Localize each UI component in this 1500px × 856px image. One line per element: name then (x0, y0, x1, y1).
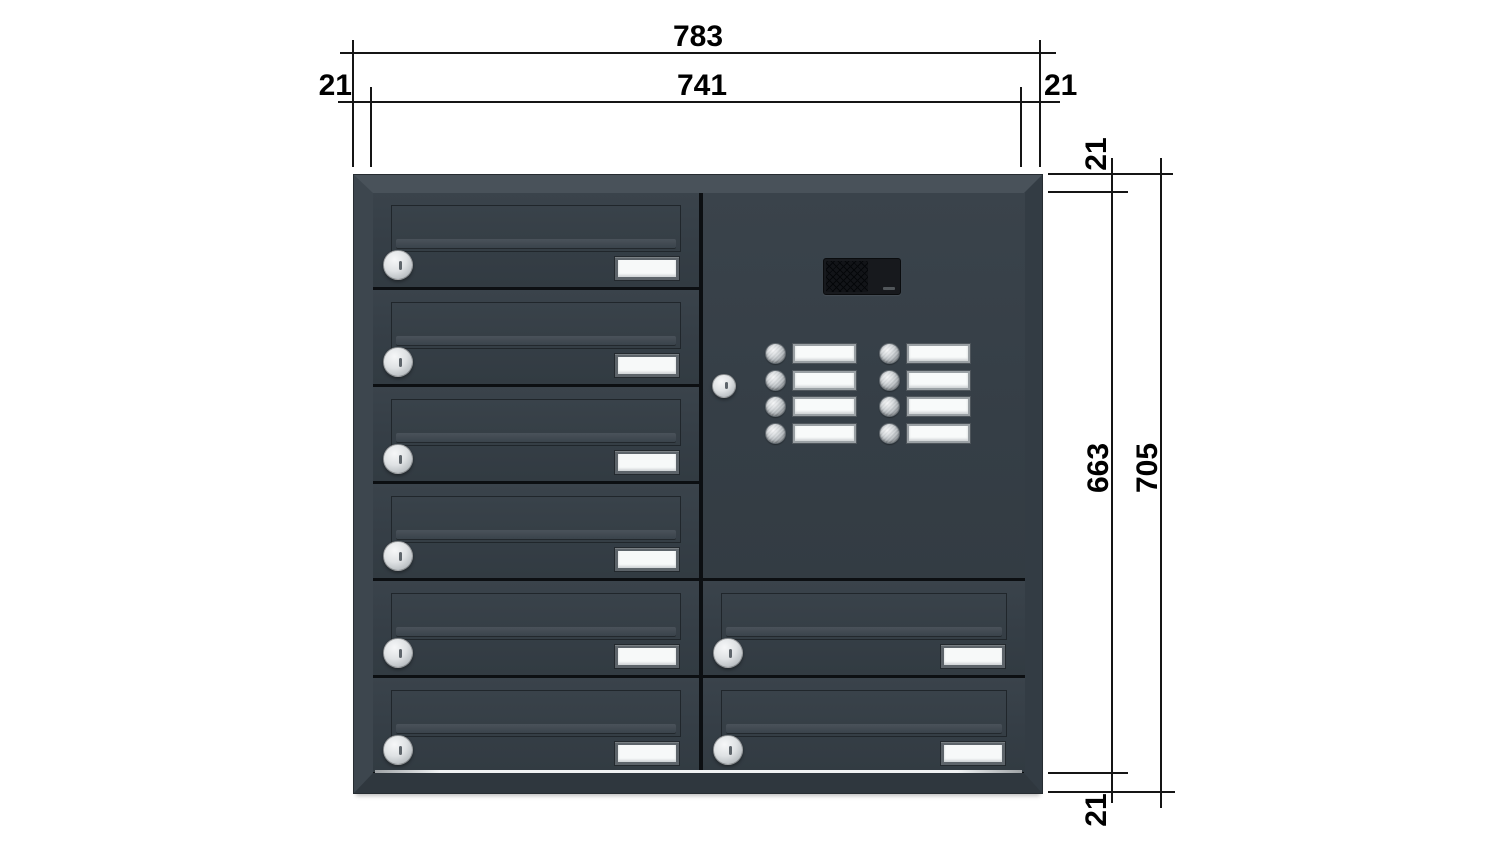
dim-label-frame-top: 21 (1081, 124, 1113, 184)
mailbox-door (373, 290, 699, 384)
extension-line-bottom-inner (1048, 772, 1128, 774)
letter-flap (721, 690, 1007, 737)
bell-name-plate-inner (909, 346, 968, 361)
name-plate (614, 256, 680, 281)
bell-button (765, 423, 786, 444)
name-plate-inner (618, 551, 676, 568)
bell-row (765, 370, 971, 391)
name-plate-inner (944, 745, 1002, 762)
letter-flap (391, 302, 681, 349)
speaker-logo (883, 287, 895, 290)
name-plate-inner (944, 648, 1002, 665)
letter-flap (391, 496, 681, 543)
door-lock-cylinder (383, 638, 413, 668)
name-plate-inner (618, 745, 676, 762)
right-door-column (703, 193, 1025, 772)
extension-line-outer-left (352, 40, 354, 167)
bell-button-grid (765, 343, 971, 444)
name-plate-inner (618, 357, 676, 374)
bell-unit (765, 423, 857, 444)
bell-unit (879, 370, 971, 391)
bell-name-plate (792, 343, 857, 364)
bell-name-plate-inner (795, 399, 854, 414)
letter-flap (391, 205, 681, 252)
bell-button (879, 396, 900, 417)
dimension-drawing: 783 741 21 21 21 663 705 21 (0, 0, 1500, 856)
name-plate (614, 741, 680, 766)
bell-row (765, 396, 971, 417)
door-lock-cylinder (383, 444, 413, 474)
bell-name-plate (906, 370, 971, 391)
name-plate (614, 353, 680, 378)
mailbox-door (703, 581, 1025, 675)
frame-bottom-highlight (375, 770, 1022, 773)
bell-button (765, 370, 786, 391)
dim-label-height-outer: 705 (1132, 438, 1164, 498)
name-plate (940, 644, 1006, 669)
name-plate-inner (618, 648, 676, 665)
letter-flap-lip (396, 724, 676, 733)
bell-unit (765, 370, 857, 391)
door-lock-cylinder (713, 638, 743, 668)
letter-flap (391, 593, 681, 640)
bell-name-plate (792, 423, 857, 444)
name-plate (614, 450, 680, 475)
bell-unit (879, 423, 971, 444)
mailbox-cabinet (354, 175, 1042, 793)
bell-name-plate-inner (795, 373, 854, 388)
cabinet-inner (373, 193, 1024, 773)
mailbox-door (373, 484, 699, 578)
bell-name-plate-inner (909, 426, 968, 441)
dim-label-height-inner: 663 (1083, 438, 1115, 498)
bell-unit (879, 343, 971, 364)
bell-unit (879, 396, 971, 417)
name-plate-inner (618, 454, 676, 471)
bell-button (765, 343, 786, 364)
bell-name-plate-inner (795, 426, 854, 441)
mailbox-door (373, 678, 699, 772)
dim-label-width-outer: 783 (648, 21, 748, 53)
bell-unit (765, 396, 857, 417)
letter-flap (721, 593, 1007, 640)
door-lock-cylinder (713, 735, 743, 765)
bell-button (879, 423, 900, 444)
bell-button (879, 343, 900, 364)
door-lock-cylinder (383, 250, 413, 280)
letter-flap (391, 399, 681, 446)
letter-flap (391, 690, 681, 737)
name-plate-inner (618, 260, 676, 277)
bell-unit (765, 343, 857, 364)
name-plate (614, 644, 680, 669)
bell-button (879, 370, 900, 391)
bell-name-plate-inner (795, 346, 854, 361)
bell-name-plate-inner (909, 373, 968, 388)
letter-flap-lip (396, 433, 676, 442)
bell-name-plate (792, 396, 857, 417)
bell-row (765, 343, 971, 364)
letter-flap-lip (726, 627, 1002, 636)
name-plate (614, 547, 680, 572)
mailbox-door (373, 387, 699, 481)
mailbox-door (373, 581, 699, 675)
door-lock-cylinder (383, 541, 413, 571)
bell-button (765, 396, 786, 417)
letter-flap-lip (396, 239, 676, 248)
dim-label-frame-left: 21 (306, 70, 352, 102)
dim-label-frame-right: 21 (1044, 70, 1090, 102)
bell-name-plate (906, 423, 971, 444)
letter-flap-lip (396, 530, 676, 539)
extension-line-outer-right (1039, 40, 1041, 167)
mailbox-door (373, 193, 699, 287)
bell-row (765, 423, 971, 444)
extension-line-top-inner (1048, 191, 1128, 193)
door-lock-cylinder (383, 347, 413, 377)
dim-label-frame-bottom: 21 (1081, 780, 1113, 840)
intercom-lock-cylinder (712, 374, 736, 398)
speaker-grille-icon (823, 258, 901, 295)
extension-line-inner-right (1020, 87, 1022, 167)
bell-name-plate-inner (909, 399, 968, 414)
bell-name-plate (906, 343, 971, 364)
mailbox-door (703, 678, 1025, 772)
letter-flap-lip (396, 336, 676, 345)
bell-name-plate (906, 396, 971, 417)
letter-flap-lip (726, 724, 1002, 733)
left-door-column (373, 193, 699, 772)
letter-flap-lip (396, 627, 676, 636)
dim-label-width-inner: 741 (652, 70, 752, 102)
speaker-mesh (826, 261, 868, 292)
bell-name-plate (792, 370, 857, 391)
intercom-panel (703, 193, 1025, 578)
door-lock-cylinder (383, 735, 413, 765)
extension-line-inner-left (370, 87, 372, 167)
name-plate (940, 741, 1006, 766)
